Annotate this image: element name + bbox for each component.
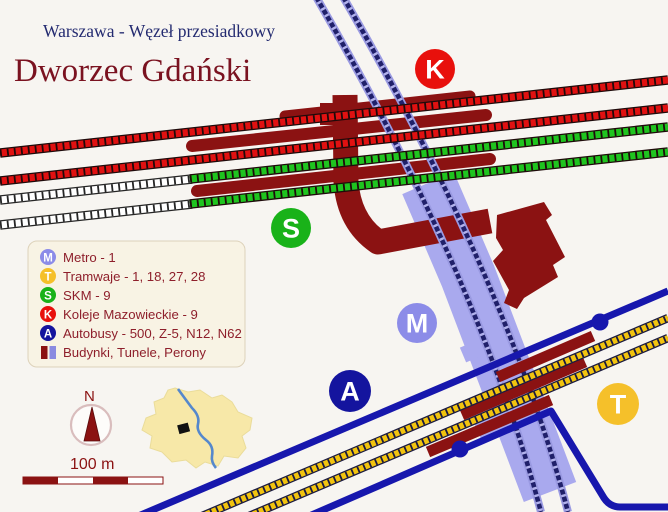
map-canvas: K S M A T Warszawa - Węzeł przesiadkowy … [0, 0, 668, 512]
legend-item-label: Koleje Mazowieckie - 9 [63, 307, 198, 322]
map-badge-tram: T [597, 383, 639, 425]
tunnel-swatch-icon [50, 346, 57, 359]
legend-item-tram: T Tramwaje - 1, 18, 27, 28 [40, 268, 205, 284]
legend: M Metro - 1 T Tramwaje - 1, 18, 27, 28 S… [28, 241, 245, 367]
skm-badge-letter: S [282, 214, 300, 244]
skm-icon-letter: S [44, 290, 52, 302]
map-badge-skm: S [271, 208, 311, 248]
scale-segment [93, 477, 128, 484]
compass-north-label: N [84, 388, 95, 405]
legend-item-label: Budynki, Tunele, Perony [63, 345, 206, 360]
legend-item-koleje: K Koleje Mazowieckie - 9 [40, 306, 198, 322]
legend-item-label: Tramwaje - 1, 18, 27, 28 [63, 269, 205, 284]
transit-map: K S M A T Warszawa - Węzeł przesiadkowy … [0, 0, 668, 512]
bus-stop-dot-west [452, 441, 469, 458]
scale-segment [23, 477, 58, 484]
legend-item-metro: M Metro - 1 [40, 249, 116, 265]
legend-item-label: SKM - 9 [63, 288, 111, 303]
autobus-icon-letter: A [44, 328, 52, 340]
metro-badge-letter: M [406, 309, 429, 339]
scale-label: 100 m [70, 456, 114, 473]
koleje-badge-letter: K [425, 55, 445, 85]
map-badge-metro: M [397, 303, 437, 343]
tram-badge-letter: T [610, 390, 627, 420]
page-title: Dworzec Gdański [14, 53, 251, 89]
legend-item-skm: S SKM - 9 [40, 287, 111, 303]
legend-item-label: Autobusy - 500, Z-5, N12, N62 [63, 326, 242, 341]
map-badge-autobus: A [329, 370, 371, 412]
legend-item-label: Metro - 1 [63, 250, 116, 265]
scale-segment [128, 477, 163, 484]
autobus-badge-letter: A [340, 377, 360, 407]
koleje-icon-letter: K [44, 309, 53, 321]
legend-item-budynki: Budynki, Tunele, Perony [41, 345, 206, 360]
metro-icon-letter: M [43, 252, 53, 264]
tram-icon-letter: T [44, 271, 51, 283]
legend-item-autobus: A Autobusy - 500, Z-5, N12, N62 [40, 325, 242, 341]
map-subtitle: Warszawa - Węzeł przesiadkowy [43, 21, 275, 41]
scale-segment [58, 477, 93, 484]
bus-stop-dot-east [592, 314, 609, 331]
map-badge-koleje: K [415, 49, 455, 89]
building-swatch-icon [41, 346, 48, 359]
